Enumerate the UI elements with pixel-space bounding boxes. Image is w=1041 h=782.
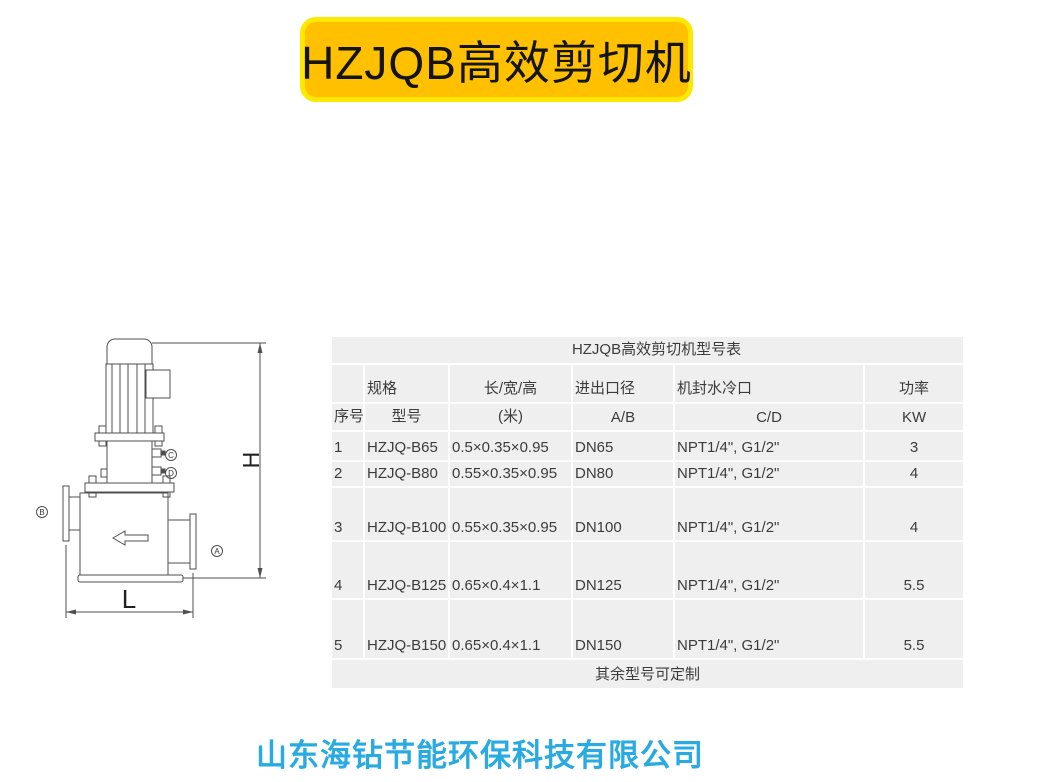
motor-assembly [106, 339, 170, 433]
arrowhead-left-icon [66, 610, 76, 615]
cell-no: 4 [331, 541, 364, 599]
arrowhead-right-icon [183, 610, 193, 615]
product-title-banner: HZJQB高效剪切机 [300, 17, 693, 102]
outlet-flange-a [190, 514, 196, 569]
inlet-flange-b [63, 486, 69, 541]
seal-housing-body [107, 441, 152, 483]
cell-model: HZJQ-B150 [364, 599, 449, 659]
table-footer-row: 其余型号可定制 [331, 659, 964, 689]
header-cell-index: 序号 [331, 403, 364, 431]
table-header-row-2: 序号 型号 (米) A/B C/D KW [331, 403, 964, 431]
cell-model: HZJQ-B100 [364, 487, 449, 541]
flow-arrow-icon [113, 531, 148, 545]
port-c-tip [161, 451, 165, 455]
nut-icon [155, 441, 162, 446]
motor-junction-box [146, 370, 170, 398]
header-cell-ports: 进出口径 [572, 364, 674, 403]
cell-port: DN65 [572, 431, 674, 461]
table-row: 3 HZJQ-B100 0.55×0.35×0.95 DN100 NPT1/4"… [331, 487, 964, 541]
port-d-nozzle [152, 467, 161, 475]
cell-power: 3 [864, 431, 964, 461]
cell-no: 5 [331, 599, 364, 659]
cell-no: 1 [331, 431, 364, 461]
base-plate [78, 575, 183, 582]
header-cell-model: 型号 [364, 403, 449, 431]
outlet-pipe-a [168, 520, 190, 563]
dim-h-label: H [238, 452, 264, 469]
table-header-row-1: 规格 长/宽/高 进出口径 机封水冷口 功率 [331, 364, 964, 403]
cell-power: 4 [864, 461, 964, 487]
cell-port: DN100 [572, 487, 674, 541]
port-d-label: D [168, 469, 174, 478]
nut-icon [99, 441, 106, 446]
cell-model: HZJQ-B125 [364, 541, 449, 599]
arrowhead-up-icon [258, 343, 263, 353]
upper-flange-plate [95, 433, 164, 441]
motor-cap [107, 339, 152, 364]
port-a-label: A [214, 547, 220, 556]
cell-power: 4 [864, 487, 964, 541]
cell-seal: NPT1/4", G1/2" [674, 541, 864, 599]
port-c-nozzle [152, 449, 161, 457]
cell-size: 0.55×0.35×0.95 [449, 461, 572, 487]
spec-sheet-page: HZJQB高效剪切机 C [0, 0, 1041, 782]
header-cell-cd: C/D [674, 403, 864, 431]
table-row: 4 HZJQ-B125 0.65×0.4×1.1 DN125 NPT1/4", … [331, 541, 964, 599]
seal-housing: C D [101, 441, 177, 483]
port-d-tip [161, 469, 165, 473]
arrowhead-down-icon [258, 568, 263, 578]
cell-model: HZJQ-B80 [364, 461, 449, 487]
header-cell [331, 364, 364, 403]
cell-size: 0.55×0.35×0.95 [449, 487, 572, 541]
cell-seal: NPT1/4", G1/2" [674, 599, 864, 659]
cell-port: DN125 [572, 541, 674, 599]
pump-casing: B A [37, 486, 223, 582]
cell-size: 0.65×0.4×1.1 [449, 599, 572, 659]
header-cell-dimensions: 长/宽/高 [449, 364, 572, 403]
cell-no: 3 [331, 487, 364, 541]
cell-port: DN80 [572, 461, 674, 487]
header-cell-ab: A/B [572, 403, 674, 431]
cell-port: DN150 [572, 599, 674, 659]
custom-models-note: 其余型号可定制 [331, 659, 964, 689]
table-row: 1 HZJQ-B65 0.5×0.35×0.95 DN65 NPT1/4", G… [331, 431, 964, 461]
cell-seal: NPT1/4", G1/2" [674, 487, 864, 541]
header-cell-kw: KW [864, 403, 964, 431]
header-cell-meters: (米) [449, 403, 572, 431]
header-cell-power: 功率 [864, 364, 964, 403]
spec-table: HZJQB高效剪切机型号表 规格 长/宽/高 进出口径 机封水冷口 功率 序号 … [330, 335, 965, 690]
bolt-icon [99, 426, 106, 433]
port-b-label: B [39, 508, 44, 517]
port-c-label: C [168, 451, 174, 460]
cell-size: 0.5×0.35×0.95 [449, 431, 572, 461]
company-name: 山东海钻节能环保科技有限公司 [0, 730, 960, 775]
cell-power: 5.5 [864, 541, 964, 599]
table-title-row: HZJQB高效剪切机型号表 [331, 336, 964, 364]
bolt-icon [89, 476, 96, 483]
table-title: HZJQB高效剪切机型号表 [331, 336, 964, 364]
cell-model: HZJQ-B65 [364, 431, 449, 461]
dim-l-label: L [122, 584, 136, 614]
table-row: 5 HZJQ-B150 0.65×0.4×1.1 DN150 NPT1/4", … [331, 599, 964, 659]
header-cell-seal-cooling: 机封水冷口 [674, 364, 864, 403]
cell-size: 0.65×0.4×1.1 [449, 541, 572, 599]
cell-power: 5.5 [864, 599, 964, 659]
lower-flange-plate [85, 483, 174, 492]
inlet-pipe-b [69, 497, 80, 530]
cell-no: 2 [331, 461, 364, 487]
bolt-icon [155, 426, 162, 433]
seal-left-stub [101, 469, 107, 477]
cell-seal: NPT1/4", G1/2" [674, 461, 864, 487]
upper-flange [95, 426, 164, 446]
product-title: HZJQB高效剪切机 [301, 27, 692, 93]
pump-technical-drawing: C D B A [30, 330, 275, 630]
table-row: 2 HZJQ-B80 0.55×0.35×0.95 DN80 NPT1/4", … [331, 461, 964, 487]
header-cell-spec: 规格 [364, 364, 449, 403]
lower-flange [85, 476, 174, 497]
cell-seal: NPT1/4", G1/2" [674, 431, 864, 461]
